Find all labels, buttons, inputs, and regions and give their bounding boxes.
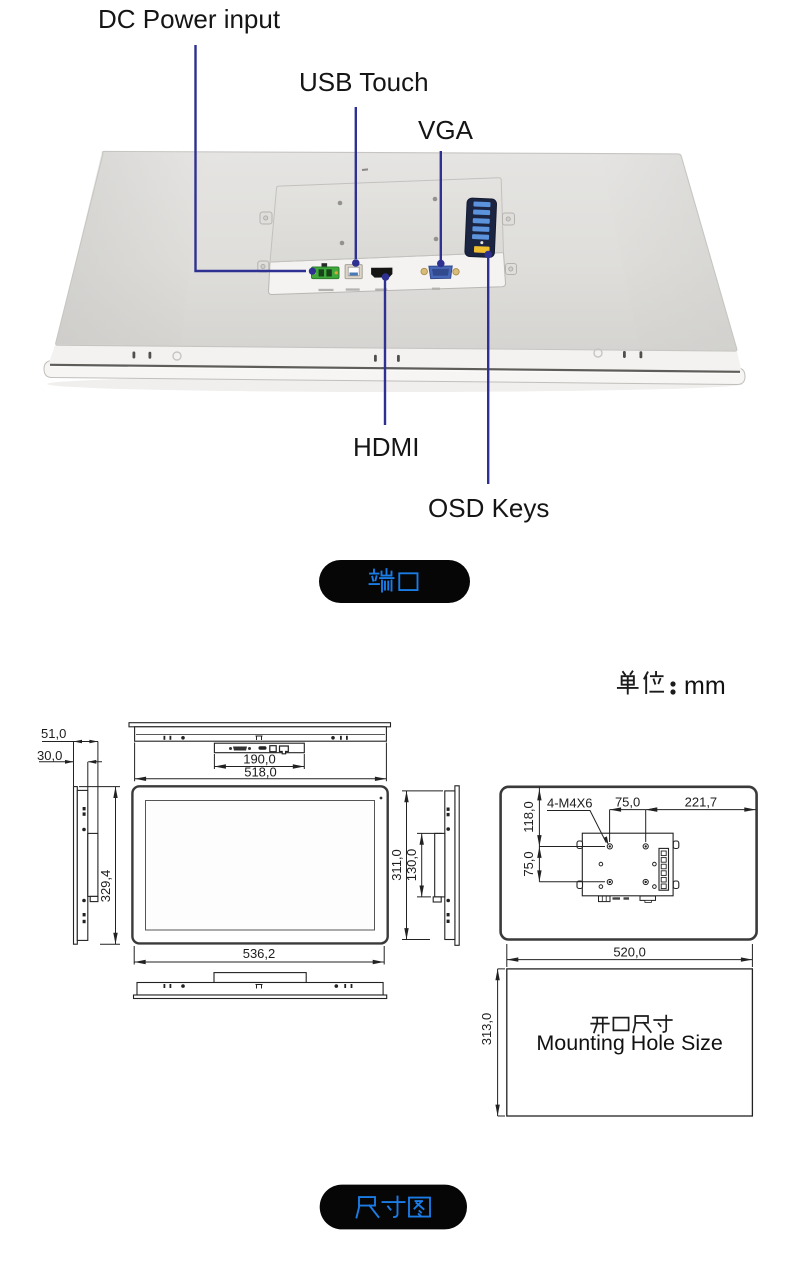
svg-text:mm: mm bbox=[684, 672, 726, 700]
svg-text:518,0: 518,0 bbox=[244, 765, 277, 780]
svg-text:329,4: 329,4 bbox=[98, 870, 113, 903]
svg-text:USB Touch: USB Touch bbox=[299, 67, 429, 97]
svg-text:OSD Keys: OSD Keys bbox=[428, 493, 549, 523]
svg-text:75,0: 75,0 bbox=[521, 851, 536, 876]
svg-text:311,0: 311,0 bbox=[389, 849, 404, 881]
svg-text:VGA: VGA bbox=[418, 115, 474, 145]
svg-text:51,0: 51,0 bbox=[41, 726, 66, 741]
svg-text:4-M4X6: 4-M4X6 bbox=[547, 796, 593, 811]
svg-text:Mounting Hole Size: Mounting Hole Size bbox=[536, 1031, 722, 1055]
svg-text:520,0: 520,0 bbox=[613, 944, 646, 959]
svg-text:DC Power input: DC Power input bbox=[98, 4, 281, 34]
svg-text:313,0: 313,0 bbox=[479, 1013, 494, 1046]
svg-text:HDMI: HDMI bbox=[353, 432, 419, 462]
svg-text:130,0: 130,0 bbox=[404, 849, 419, 882]
svg-text:221,7: 221,7 bbox=[685, 795, 718, 810]
svg-text:30,0: 30,0 bbox=[37, 748, 62, 763]
svg-text:536,2: 536,2 bbox=[243, 946, 276, 961]
svg-text:75,0: 75,0 bbox=[615, 795, 640, 810]
svg-text:118,0: 118,0 bbox=[521, 801, 536, 833]
